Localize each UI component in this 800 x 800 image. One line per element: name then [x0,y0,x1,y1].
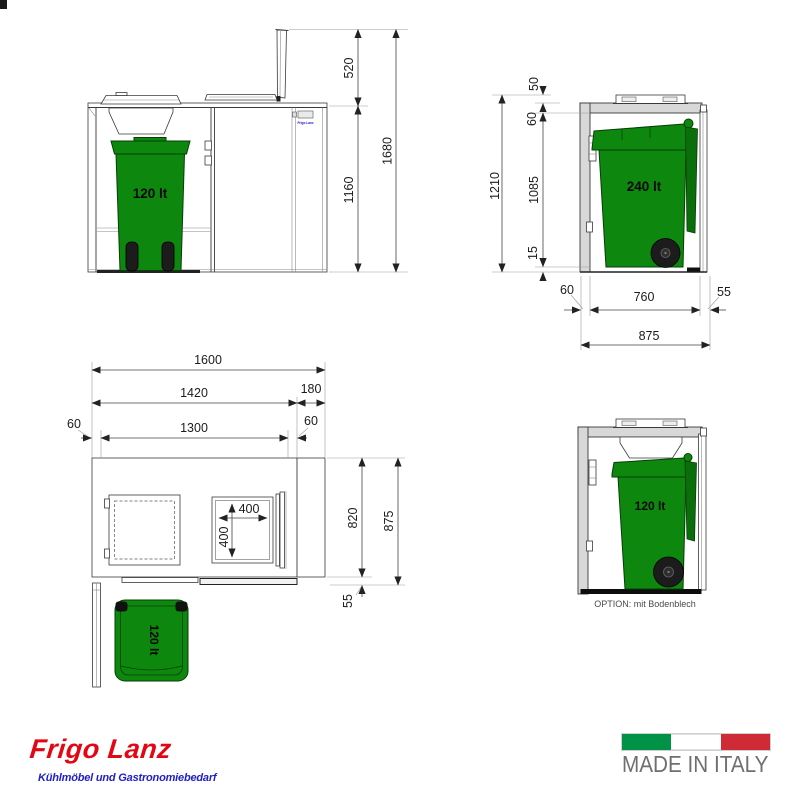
dim-right-gap: 55 [717,285,731,299]
page-corner-mark [0,0,7,9]
roof-panel [580,103,702,113]
top-lid-handle [613,95,688,104]
foot [687,268,700,272]
dim-total-width: 1600 [194,353,222,367]
dim-interior-width: 760 [634,290,655,304]
dim-wall-left: 60 [67,417,81,431]
made-in-italy-badge: MADE IN ITALY [622,734,772,776]
wall-catch [587,222,593,232]
bodenblech-floor-plate [581,589,702,594]
side120-bin: 120 lt [612,454,697,590]
right-panel [700,110,707,272]
bin-capacity-label: 120 lt [635,499,666,513]
dim-body-width: 1420 [180,386,208,400]
plan-hatch-door [105,495,181,565]
right-panel [699,434,707,590]
bin-hinge-knob [684,454,692,462]
dim-interior-width: 1300 [180,421,208,435]
logo-title: Frigo Lanz [29,736,252,762]
hatch-hinge [105,499,110,508]
dim-base-height: 15 [526,246,540,260]
plan-view: 400 400 120 lt [67,353,405,687]
roof-panel [578,427,702,437]
dim-door-offset: 55 [341,594,355,608]
company-logo: Frigo Lanz Kühlmöbel und Gastronomiebeda… [30,736,250,784]
funnel [109,108,173,134]
panel-brand-text: Frigo Lanz [297,121,314,125]
dim-unit-depth: 180 [301,382,322,396]
dim-total-width: 875 [639,329,660,343]
dim-wall-right: 60 [304,414,318,428]
wall-catch [587,541,593,551]
left-wall [578,427,588,594]
dim-roof-thickness: 60 [525,112,539,126]
flag-red-band [721,734,770,750]
door-hinge [205,141,212,150]
threshold-strip [122,578,198,583]
lid-hinge [277,96,281,102]
bin-capacity-label: 240 lt [627,179,662,194]
opening-lid-open [276,494,280,566]
bin-lid [612,458,690,477]
front-view: Frigo Lanz [88,30,408,274]
top-lid-handle [613,419,688,428]
open-lid [205,30,289,102]
bin-capacity-label: 120 lt [133,186,168,201]
dim-handle-height: 50 [527,77,541,91]
bin-lid [592,124,691,150]
bin-handle-flap [686,127,698,233]
logo-subtitle: Kühlmöbel und Gastronomiebedarf [38,772,250,784]
dim-total-height: 1210 [488,172,502,200]
bin-handle [176,602,188,612]
bin-handle [116,602,128,612]
drawing-canvas: Frigo Lanz [0,0,800,800]
italian-flag [622,734,770,750]
bin-wheel [126,242,138,271]
dim-interior-height: 1085 [527,176,541,204]
option-caption: OPTION: mit Bodenblech [594,599,696,609]
bin-lid [111,141,190,154]
left-wall [580,103,590,272]
bin-handle-flap [685,461,697,541]
hatch-hinge [105,549,110,558]
door-hinge [205,156,212,165]
dim-opening-depth: 400 [217,527,231,548]
dim-wall-thickness: 60 [560,283,574,297]
made-in-italy-text: MADE IN ITALY [622,752,757,776]
dim-total-depth: 875 [382,511,396,532]
side240-bin: 240 lt [592,119,698,268]
dim-lid-open: 520 [342,58,356,79]
side-view-240: 240 lt 1210 50 60 1085 15 [488,77,731,350]
flag-white-band [671,734,720,750]
dim-opening-width: 400 [239,502,260,516]
front-bin-120: 120 lt [111,138,190,272]
wall-latch [589,460,596,485]
flag-green-band [622,734,671,750]
funnel [620,437,682,458]
dim-body-depth: 820 [346,508,360,529]
plan-bin-120: 120 lt [115,600,188,681]
threshold-rail [200,579,297,585]
dim-total-height: 1680 [381,137,395,165]
bin-capacity-label: 120 lt [147,625,161,656]
technical-drawing-sheet: Frigo Lanz [0,0,800,800]
side-view-120: 120 lt OPTION: mit Bodenblech [578,419,707,609]
bin-wheel [162,242,174,271]
dim-body-height: 1160 [342,177,356,204]
plan-open-door [93,583,101,687]
